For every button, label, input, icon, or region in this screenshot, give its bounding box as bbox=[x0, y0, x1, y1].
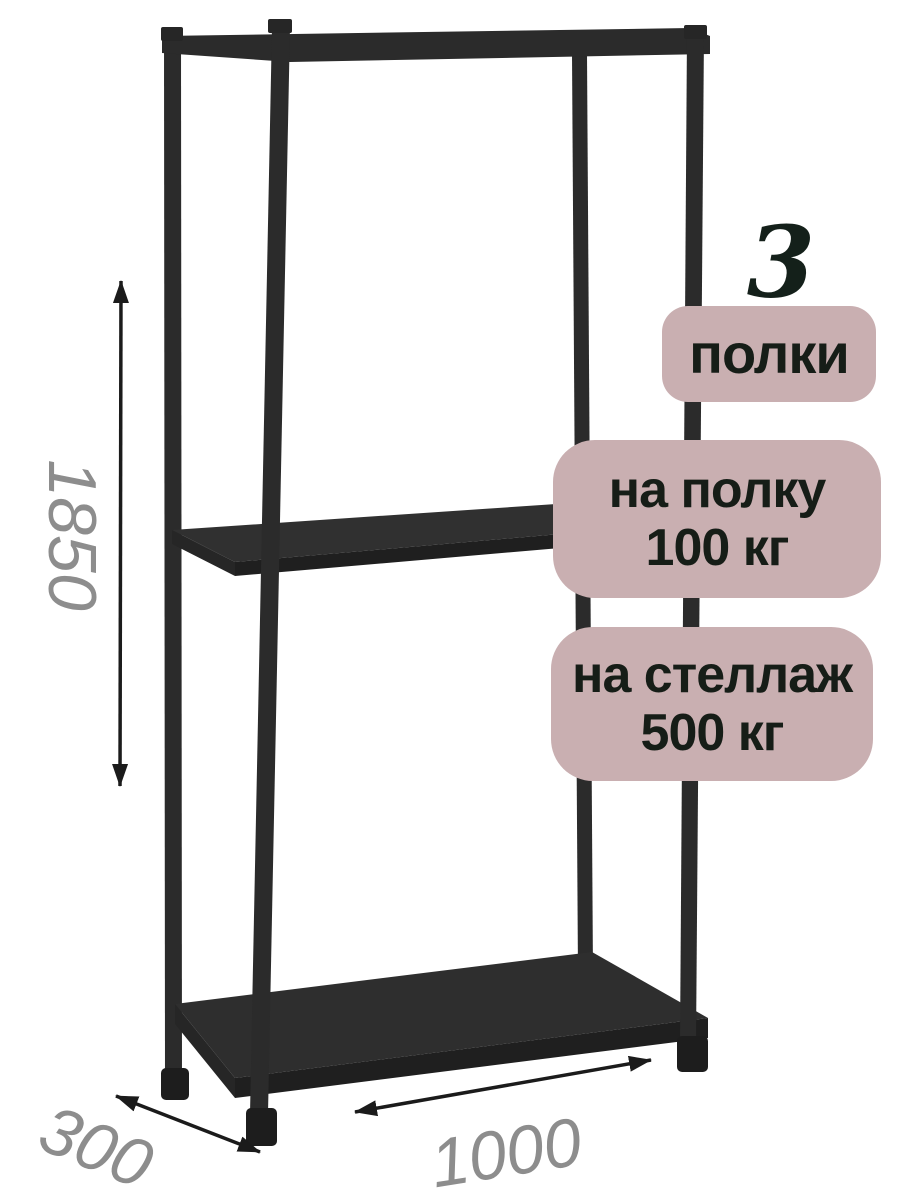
product-image: 3 полки на полку 100 кг на стеллаж 500 к… bbox=[0, 0, 900, 1200]
rack-foot-front-left bbox=[246, 1108, 277, 1146]
rack-top-shelf bbox=[162, 28, 710, 62]
shelf-load-badge: на полку 100 кг bbox=[553, 440, 881, 598]
shelf-load-line2: 100 кг bbox=[646, 519, 789, 577]
shelf-count-number: 3 bbox=[747, 206, 815, 321]
shelf-count-badge: полки bbox=[662, 306, 876, 402]
rack-load-line2: 500 кг bbox=[641, 704, 784, 762]
rack-post-cap-front-right bbox=[684, 25, 707, 39]
rack-load-line1: на стеллаж bbox=[572, 646, 852, 704]
rack-foot-front-right bbox=[677, 1036, 708, 1072]
height-dimension-arrow bbox=[120, 281, 121, 786]
rack-load-badge: на стеллаж 500 кг bbox=[551, 627, 873, 781]
height-dimension-label: 1850 bbox=[33, 459, 111, 610]
shelving-rack-illustration bbox=[0, 0, 900, 1200]
shelf-count-label: полки bbox=[689, 323, 849, 386]
rack-post-back-left bbox=[164, 34, 182, 1090]
shelf-load-line1: на полку bbox=[609, 461, 826, 519]
rack-post-cap-back-left bbox=[161, 27, 183, 41]
rack-post-cap-front-left bbox=[268, 19, 292, 33]
rack-foot-back-left bbox=[161, 1068, 189, 1100]
